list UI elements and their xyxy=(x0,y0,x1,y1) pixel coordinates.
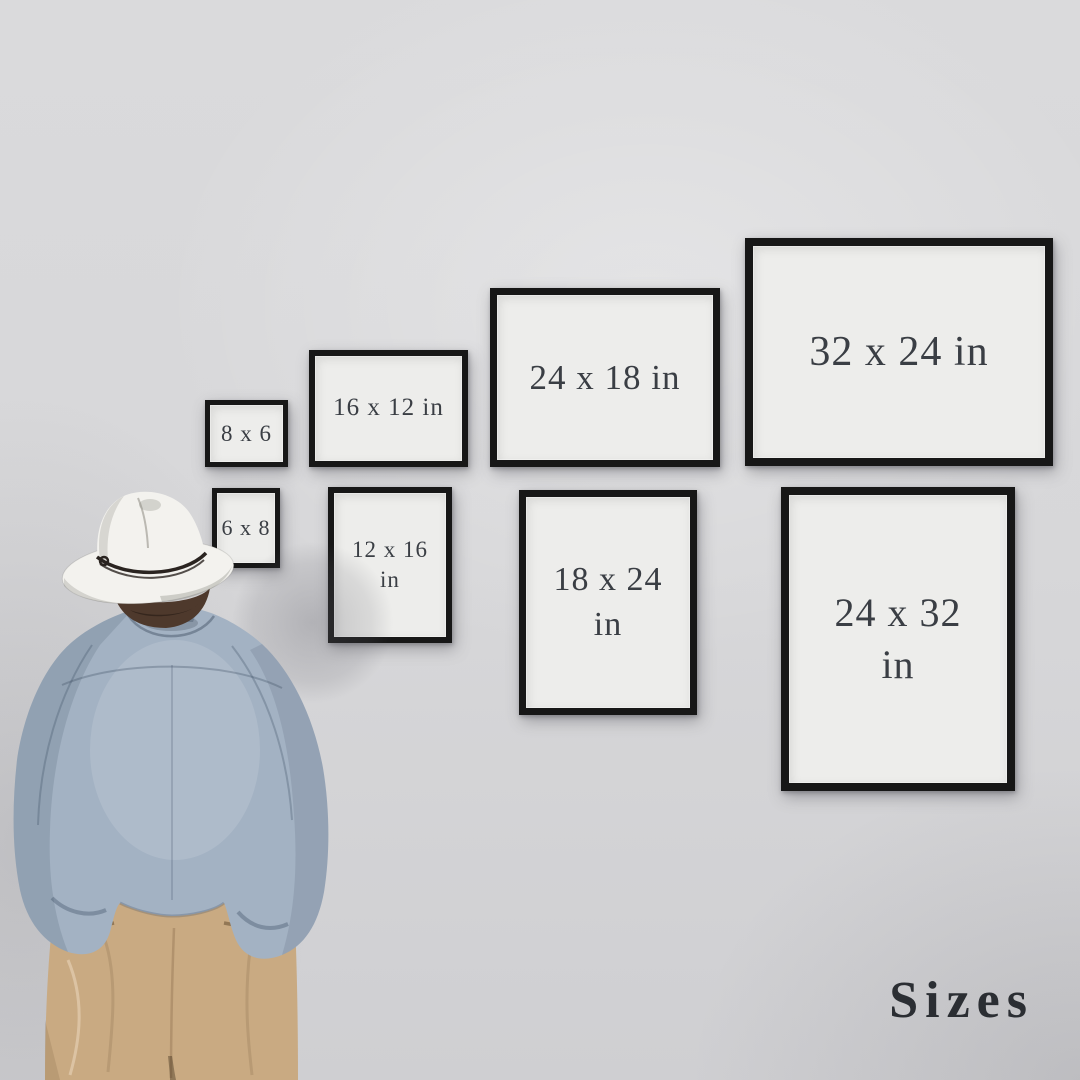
frame-32x24: 32 x 24 in xyxy=(745,238,1053,466)
frame-18x24: 18 x 24 in xyxy=(519,490,697,715)
frame-12x16: 12 x 16 in xyxy=(328,487,452,643)
fedora-hat xyxy=(60,492,237,611)
size-label-32x24: 32 x 24 in xyxy=(809,325,988,380)
size-text: 18 x 24 xyxy=(554,558,663,602)
dress-shirt xyxy=(14,606,329,959)
size-label-16x12: 16 x 12 in xyxy=(333,392,444,425)
sizes-caption: Sizes xyxy=(889,971,1034,1030)
size-label-18x24: 18 x 24 in xyxy=(554,558,663,646)
size-label-8x6: 8 x 6 xyxy=(221,419,272,449)
size-text: 16 x 12 in xyxy=(333,392,444,425)
frame-16x12: 16 x 12 in xyxy=(309,350,468,467)
size-text: 24 x 18 in xyxy=(530,355,681,401)
frame-24x32: 24 x 32 in xyxy=(781,487,1015,791)
size-text-2: in xyxy=(554,603,663,647)
man-viewing-wall xyxy=(0,460,340,1080)
size-text: 24 x 32 xyxy=(835,587,962,639)
frame-8x6: 8 x 6 xyxy=(205,400,288,467)
size-text-2: in xyxy=(835,639,962,691)
size-label-24x18: 24 x 18 in xyxy=(530,355,681,401)
size-text: 12 x 16 xyxy=(352,535,428,565)
size-text: 32 x 24 in xyxy=(809,325,988,380)
size-text: 8 x 6 xyxy=(221,419,272,449)
frame-24x18: 24 x 18 in xyxy=(490,288,720,467)
size-label-24x32: 24 x 32 in xyxy=(835,587,962,691)
size-label-12x16: 12 x 16 in xyxy=(352,535,428,595)
frame-sizes-mockup: 8 x 6 6 x 8 16 x 12 in 12 x 16 in 24 x 1… xyxy=(0,0,1080,1080)
size-text-2: in xyxy=(352,565,428,595)
